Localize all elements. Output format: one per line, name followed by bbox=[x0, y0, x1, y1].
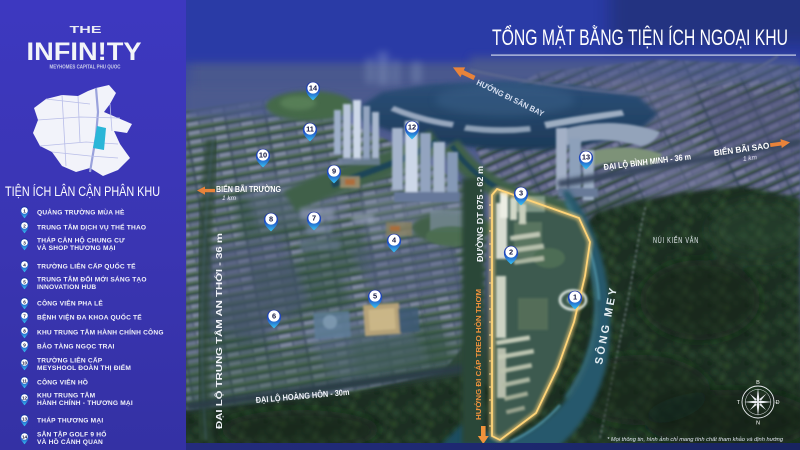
svg-text:NÚI KIẾN VÂN: NÚI KIẾN VÂN bbox=[653, 235, 699, 245]
svg-text:HƯỚNG ĐI CÁP TREO HÒN THƠM: HƯỚNG ĐI CÁP TREO HÒN THƠM bbox=[474, 289, 483, 420]
svg-text:VÀ SHOP THƯƠNG MẠI: VÀ SHOP THƯƠNG MẠI bbox=[37, 243, 116, 252]
svg-text:10: 10 bbox=[259, 151, 267, 160]
svg-text:B: B bbox=[756, 380, 760, 386]
svg-text:MEYHOMES CAPITAL PHU QUOC: MEYHOMES CAPITAL PHU QUOC bbox=[50, 65, 121, 71]
svg-text:HÀNH CHÍNH - THƯƠNG MẠI: HÀNH CHÍNH - THƯƠNG MẠI bbox=[37, 398, 133, 407]
svg-text:1 km: 1 km bbox=[222, 195, 237, 202]
svg-text:QUẢNG TRƯỜNG MÙA HÈ: QUẢNG TRƯỜNG MÙA HÈ bbox=[37, 207, 125, 216]
svg-text:KHU TRUNG TÂM HÀNH CHÍNH CÔNG: KHU TRUNG TÂM HÀNH CHÍNH CÔNG bbox=[37, 327, 164, 336]
svg-text:7: 7 bbox=[23, 313, 26, 318]
svg-text:14: 14 bbox=[22, 434, 28, 439]
svg-text:5: 5 bbox=[373, 292, 377, 301]
svg-text:7: 7 bbox=[312, 214, 316, 223]
svg-text:9: 9 bbox=[23, 342, 26, 347]
svg-text:4: 4 bbox=[23, 262, 26, 267]
svg-text:* Mọi thông tin, hình ảnh chỉ: * Mọi thông tin, hình ảnh chỉ mang tính … bbox=[607, 436, 784, 443]
svg-text:THÁP CĂN HỘ CHUNG CƯ: THÁP CĂN HỘ CHUNG CƯ bbox=[37, 236, 125, 245]
svg-text:13: 13 bbox=[582, 153, 590, 162]
svg-text:2: 2 bbox=[23, 223, 26, 228]
svg-text:KHU TRUNG TÂM: KHU TRUNG TÂM bbox=[37, 391, 96, 400]
svg-text:1: 1 bbox=[573, 293, 577, 302]
svg-text:13: 13 bbox=[22, 416, 28, 421]
svg-text:T: T bbox=[737, 400, 741, 406]
svg-text:MEYSHOOL ĐOÀN THỊ ĐIỂM: MEYSHOOL ĐOÀN THỊ ĐIỂM bbox=[37, 363, 131, 372]
svg-text:11: 11 bbox=[22, 378, 27, 383]
svg-text:TIỆN ÍCH LÂN CẬN PHÂN KHU: TIỆN ÍCH LÂN CẬN PHÂN KHU bbox=[5, 184, 160, 199]
svg-text:TỔNG MẶT BẰNG TIỆN ÍCH NGOẠI K: TỔNG MẶT BẰNG TIỆN ÍCH NGOẠI KHU bbox=[492, 25, 788, 50]
svg-text:6: 6 bbox=[272, 312, 276, 321]
svg-text:2: 2 bbox=[509, 248, 513, 257]
svg-text:8: 8 bbox=[23, 328, 26, 333]
svg-text:INFIN!TY: INFIN!TY bbox=[27, 38, 142, 66]
svg-text:5: 5 bbox=[23, 279, 26, 284]
svg-text:3: 3 bbox=[519, 189, 523, 198]
svg-text:BIỂN BÃI TRƯỜNG: BIỂN BÃI TRƯỜNG bbox=[216, 185, 281, 194]
svg-text:12: 12 bbox=[408, 123, 416, 132]
svg-text:INNOVATION HUB: INNOVATION HUB bbox=[37, 284, 96, 291]
svg-text:10: 10 bbox=[22, 360, 28, 365]
svg-text:THE: THE bbox=[70, 24, 102, 36]
svg-text:N: N bbox=[756, 421, 760, 427]
svg-text:ĐẠI LỘ TRUNG TÂM AN THỚI - 36: ĐẠI LỘ TRUNG TÂM AN THỚI - 36 m bbox=[215, 233, 224, 429]
svg-text:1: 1 bbox=[23, 208, 26, 213]
svg-text:ĐƯỜNG DT 975 - 62 m: ĐƯỜNG DT 975 - 62 m bbox=[476, 166, 485, 262]
svg-text:11: 11 bbox=[306, 125, 314, 134]
svg-text:CÔNG VIÊN PHA LÊ: CÔNG VIÊN PHA LÊ bbox=[37, 298, 103, 307]
svg-text:6: 6 bbox=[23, 299, 26, 304]
svg-text:TRUNG TÂM ĐỔI MỚI SÁNG TẠO: TRUNG TÂM ĐỔI MỚI SÁNG TẠO bbox=[37, 275, 147, 284]
svg-text:14: 14 bbox=[309, 84, 318, 93]
svg-text:9: 9 bbox=[332, 167, 336, 176]
svg-text:3: 3 bbox=[23, 240, 26, 245]
svg-text:TRUNG TÂM DỊCH VỤ THỂ THAO: TRUNG TÂM DỊCH VỤ THỂ THAO bbox=[37, 222, 146, 231]
svg-text:Đ: Đ bbox=[775, 400, 779, 406]
svg-text:THÁP THƯƠNG MẠI: THÁP THƯƠNG MẠI bbox=[37, 415, 103, 424]
svg-text:12: 12 bbox=[22, 395, 28, 400]
svg-text:8: 8 bbox=[269, 215, 273, 224]
svg-text:BẢO TÀNG NGỌC TRAI: BẢO TÀNG NGỌC TRAI bbox=[37, 341, 115, 350]
